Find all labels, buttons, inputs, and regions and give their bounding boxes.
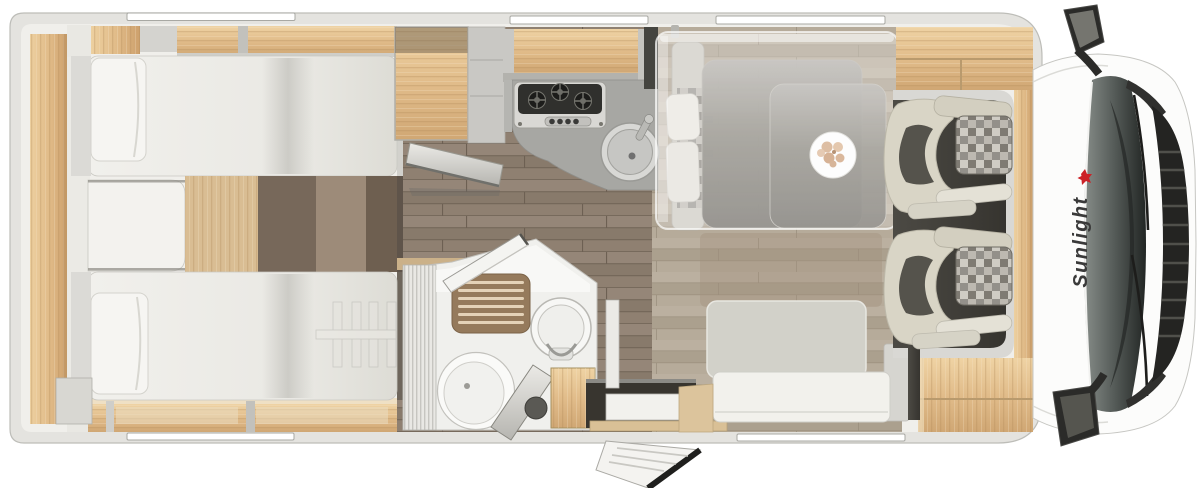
svg-text:Sunlight: Sunlight bbox=[1070, 196, 1092, 287]
